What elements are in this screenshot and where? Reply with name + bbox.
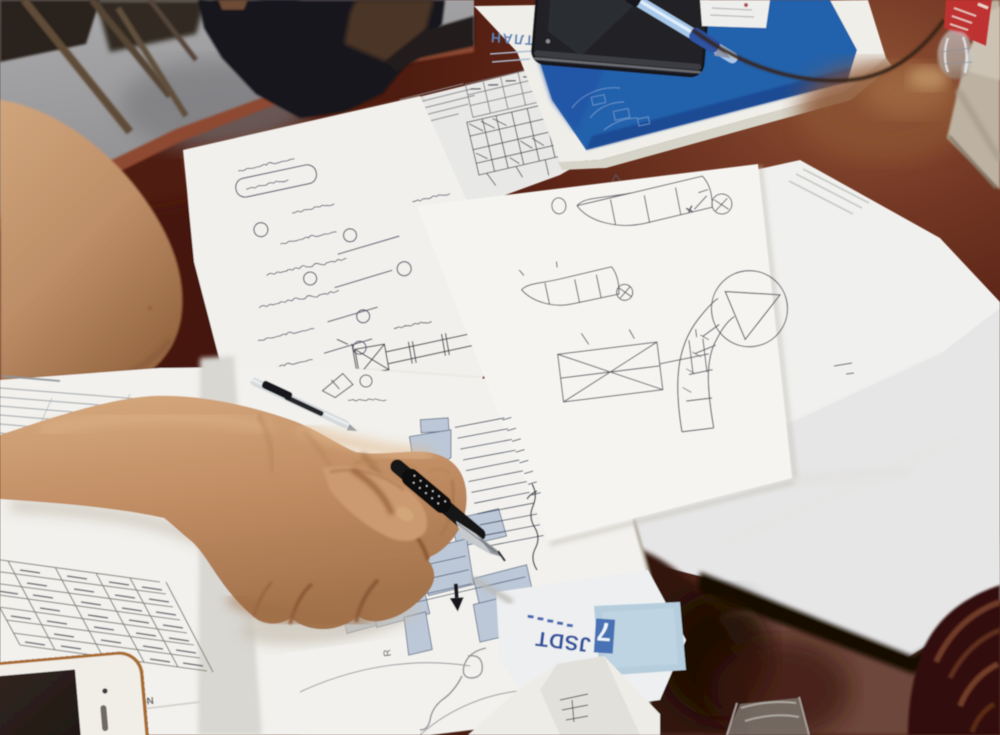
svg-text:7: 7: [596, 617, 613, 648]
